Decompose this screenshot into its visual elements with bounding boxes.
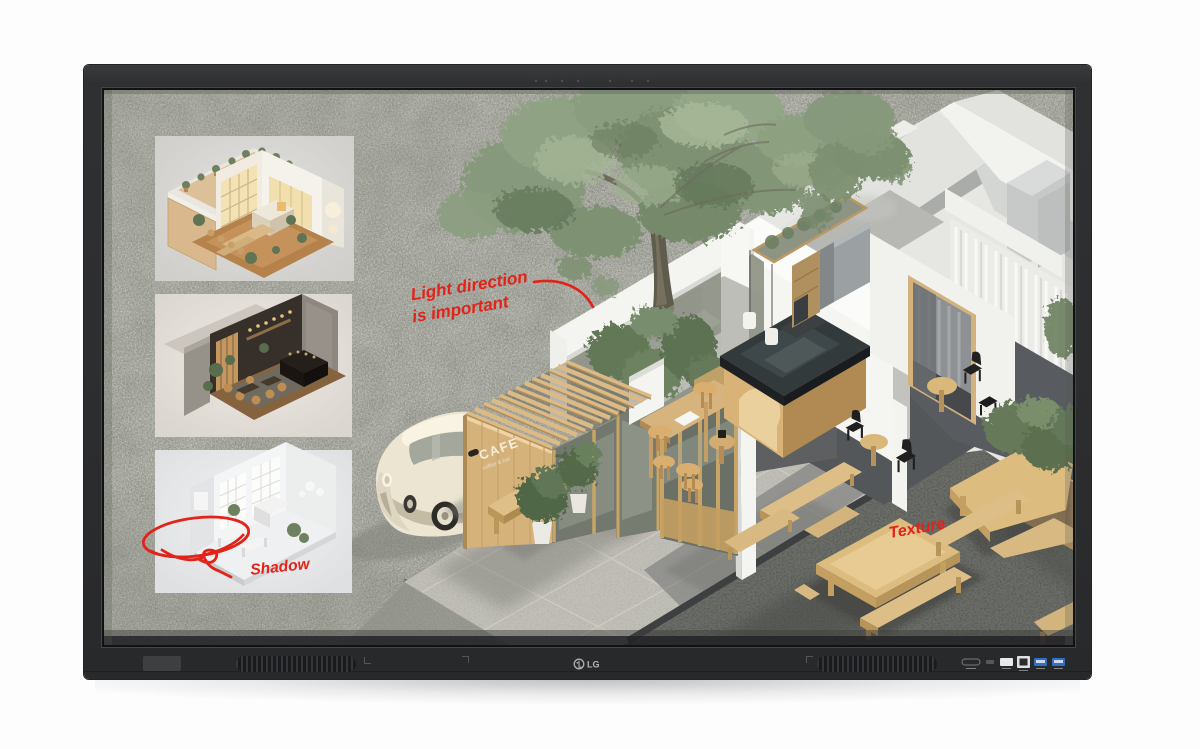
svg-text:LG: LG	[587, 660, 600, 670]
